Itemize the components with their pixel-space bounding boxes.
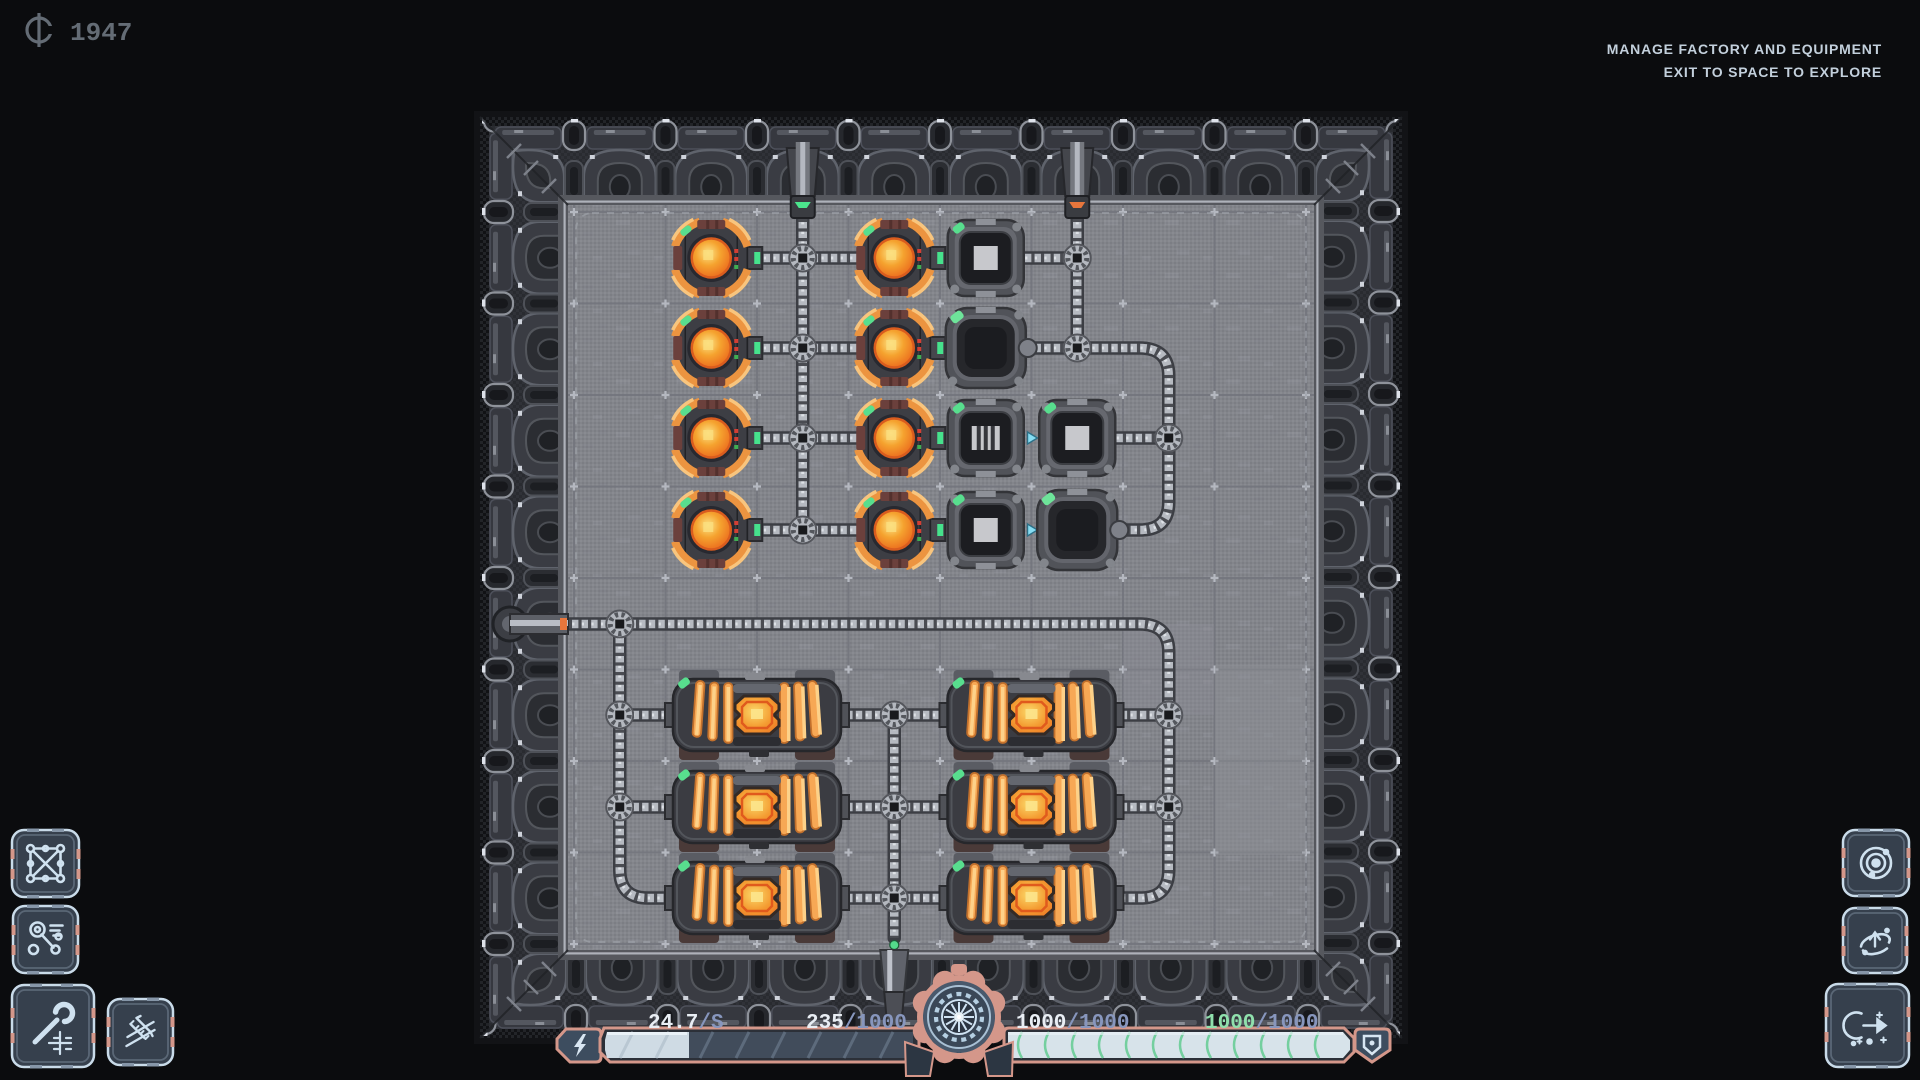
svg-text:24.7/S: 24.7/S — [648, 1012, 724, 1035]
svg-text:EXIT TO SPACE TO EXPLORE: EXIT TO SPACE TO EXPLORE — [1664, 64, 1882, 80]
svg-text:1947: 1947 — [70, 18, 132, 48]
svg-text:1000/1000: 1000/1000 — [1016, 1012, 1129, 1035]
svg-text:1000/1000: 1000/1000 — [1205, 1012, 1318, 1035]
svg-text:235/1000: 235/1000 — [806, 1012, 907, 1035]
svg-text:MANAGE FACTORY AND EQUIPMENT: MANAGE FACTORY AND EQUIPMENT — [1607, 41, 1882, 57]
